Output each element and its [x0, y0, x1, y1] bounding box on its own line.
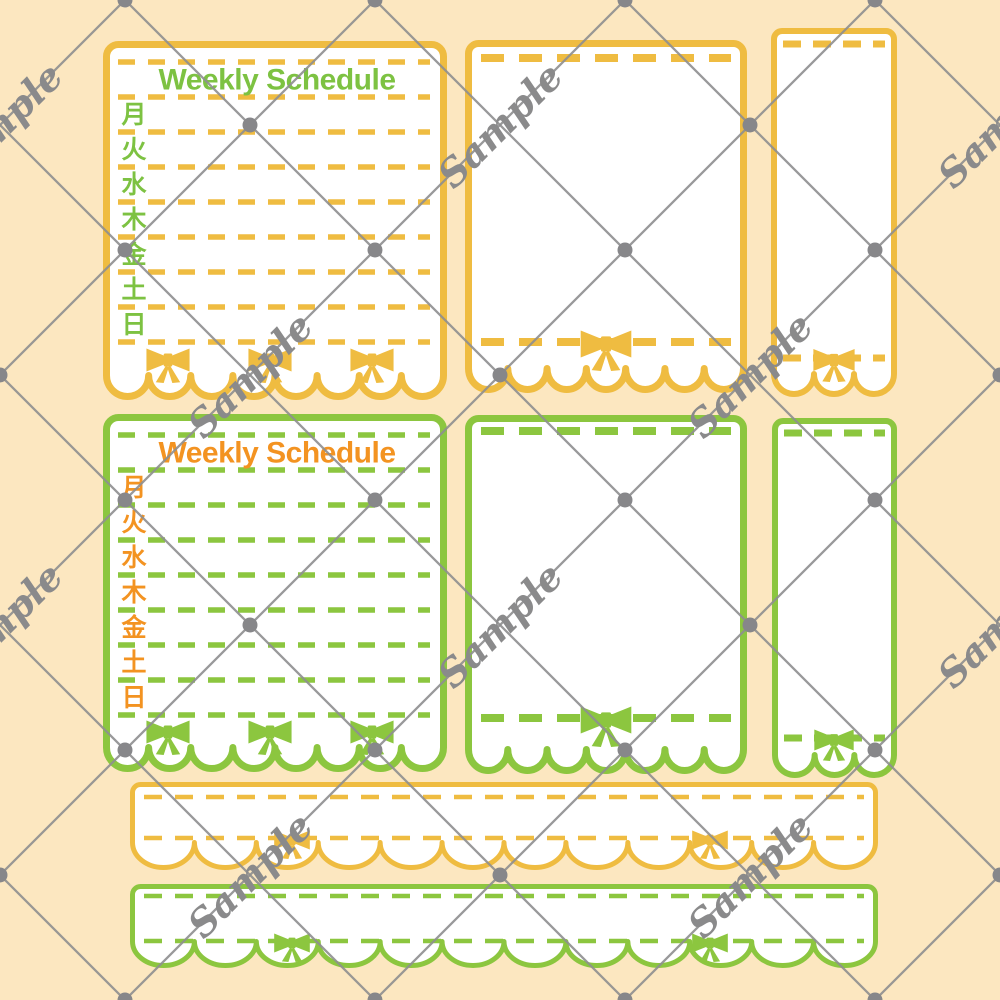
grid-dot: [868, 993, 883, 1000]
weekly-schedule-memo-yellow: Weekly Schedule月火水木金土日: [103, 41, 447, 400]
grid-dot: [618, 993, 633, 1000]
weekday-label: 火: [121, 508, 146, 537]
weekly-schedule-memo-green: Weekly Schedule月火水木金土日: [103, 414, 447, 772]
card-frame: [132, 887, 875, 966]
stationery-design-sheet: Weekly Schedule月火水木金土日Weekly Schedule月火水…: [0, 0, 1000, 1000]
weekday-label: 金: [120, 240, 147, 269]
sample-watermark-text: Sample: [928, 53, 1000, 196]
scallop-ribbon-banner-green: [130, 884, 878, 968]
grid-dot: [993, 868, 1000, 883]
weekday-label: 木: [120, 578, 146, 607]
sample-watermark-text: Sample: [0, 553, 72, 696]
weekday-label: 土: [121, 648, 146, 677]
weekday-label: 水: [121, 543, 147, 572]
weekday-label: 日: [121, 310, 146, 339]
weekday-label: 金: [120, 613, 147, 642]
grid-dot: [993, 368, 1000, 383]
weekday-label: 日: [121, 683, 146, 712]
weekday-label: 火: [121, 135, 146, 164]
grid-dot: [868, 0, 883, 8]
grid-dot: [118, 0, 133, 8]
grid-dot: [0, 368, 8, 383]
card-frame: [774, 31, 894, 394]
card-title: Weekly Schedule: [158, 64, 395, 97]
grid-dot: [0, 868, 8, 883]
weekday-label: 土: [121, 275, 146, 304]
grid-dot: [618, 0, 633, 8]
memo-note-green-medium: [465, 415, 747, 774]
memo-note-yellow-medium: [465, 40, 747, 393]
memo-note-yellow-slim: [771, 28, 897, 397]
card-frame: [775, 421, 894, 775]
weekday-label: 水: [121, 170, 147, 199]
grid-dot: [118, 993, 133, 1000]
sample-watermark-text: Sample: [0, 53, 72, 196]
memo-note-green-slim: [772, 418, 897, 778]
card-title: Weekly Schedule: [158, 437, 395, 470]
sample-watermark-text: Sample: [928, 553, 1000, 696]
weekday-label: 月: [120, 100, 146, 129]
scallop-ribbon-banner-yellow: [130, 782, 878, 870]
grid-dot: [368, 993, 383, 1000]
grid-dot: [368, 0, 383, 8]
weekday-label: 月: [120, 473, 146, 502]
weekday-label: 木: [120, 205, 146, 234]
